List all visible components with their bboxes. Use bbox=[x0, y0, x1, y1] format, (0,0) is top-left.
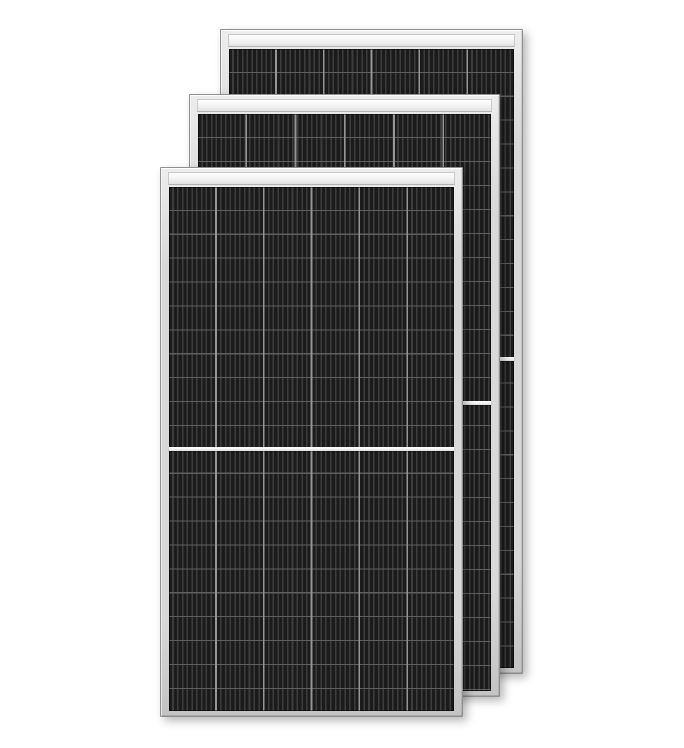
panel-top-trim bbox=[228, 34, 515, 47]
product-image-canvas bbox=[0, 0, 684, 748]
solar-panel-front bbox=[160, 167, 463, 717]
panel-top-trim bbox=[168, 172, 455, 185]
panel-center-divider bbox=[169, 447, 454, 451]
panel-top-trim bbox=[197, 99, 492, 112]
panel-cell-grid bbox=[169, 187, 454, 711]
